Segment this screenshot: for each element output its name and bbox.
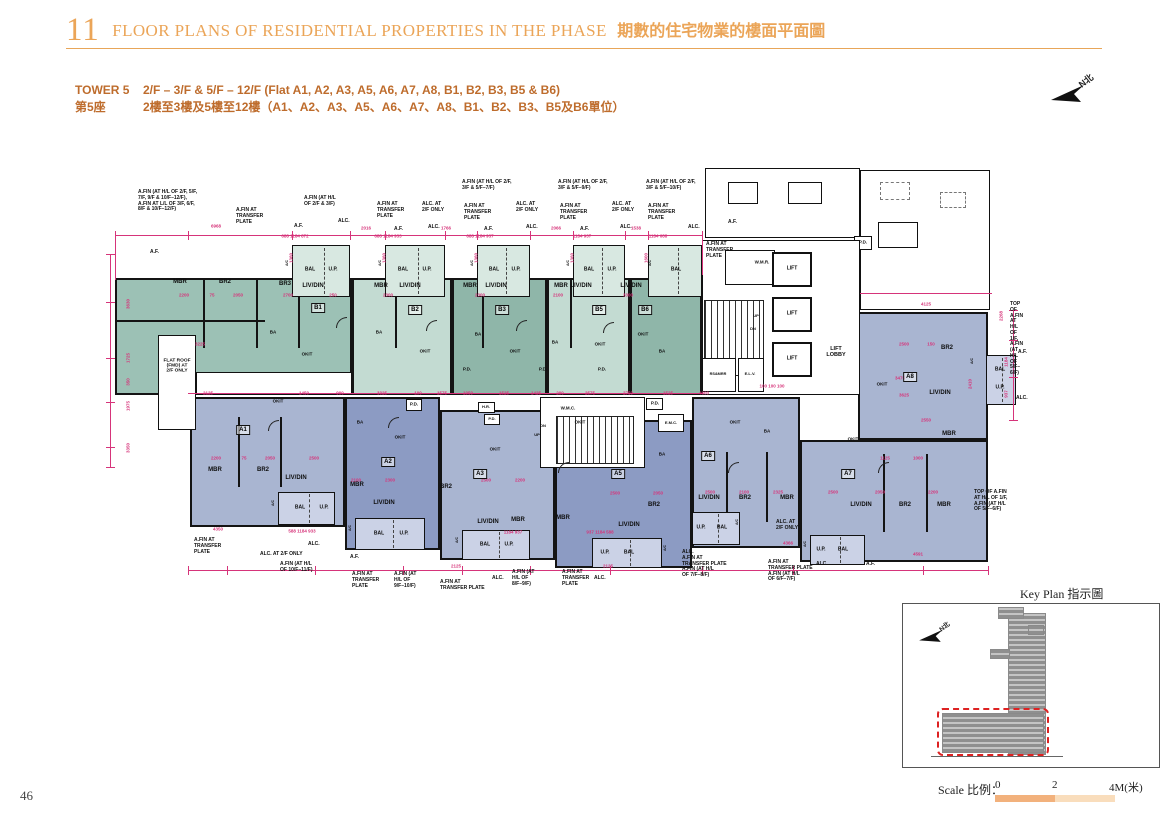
dimension-tick [1009, 377, 1018, 378]
dimension-tick [350, 231, 351, 240]
dimension-value: 1184 688 [649, 234, 668, 239]
balcony [385, 245, 445, 297]
key-plan-north-arrow-icon: N北 [917, 626, 950, 648]
dimension-value: 1000 [913, 456, 923, 461]
room-label: DN [540, 424, 546, 428]
flat-badge-B3: B3 [495, 305, 509, 315]
dimension-value: 1184 937 [573, 234, 592, 239]
dimension-value: 2300 [475, 293, 485, 298]
dimension-value: 937 [1004, 390, 1009, 398]
plan-annotation: A.F. [866, 562, 875, 568]
flat-badge-A3: A3 [473, 469, 487, 479]
room-label: A/C [567, 260, 571, 266]
room-label: DN [750, 327, 756, 331]
tower-info: TOWER 5 2/F – 3/F & 5/F – 12/F (Flat A1,… [75, 82, 624, 116]
room-label: A/C [286, 260, 290, 266]
room-label: BR2 [440, 484, 452, 490]
room-label: MBR [208, 467, 222, 473]
dimension-value: 2200 [928, 490, 938, 495]
dimension-value: 2575 [585, 391, 595, 396]
dimension-value: 1450 [299, 391, 309, 396]
dimension-tick [106, 467, 115, 468]
dimension-tick [106, 402, 115, 403]
balcony [462, 530, 530, 560]
dimension-tick [462, 566, 463, 575]
room-label: U.P. [422, 267, 431, 272]
dimension-value: 1975 [126, 401, 131, 411]
room-label: MBR [350, 482, 364, 488]
page-title-en: FLOOR PLANS OF RESIDENTIAL PROPERTIES IN… [112, 21, 607, 40]
room-label: U.P. [399, 531, 408, 536]
plan-annotation: A.F. [728, 220, 737, 226]
dimension-value: 2125 [603, 564, 613, 569]
room-label: BA [376, 331, 383, 336]
dimension-value: 2300 [385, 478, 395, 483]
flat-badge-A1: A1 [236, 425, 250, 435]
service-room [196, 372, 352, 395]
room-label: UP [753, 314, 759, 318]
plan-annotation: A.FIN (AT H/L OF 2/F, 3/F & 5/F–9/F) [558, 180, 608, 192]
room-label: BAL [305, 267, 315, 272]
room-label: OKIT [510, 350, 521, 355]
room-label: LIV/DIN [850, 502, 871, 508]
room-label: BA [659, 453, 666, 458]
tower-name-zh: 第5座 [75, 99, 143, 116]
plan-annotation: ALC. AT 2/F ONLY [422, 202, 444, 214]
dimension-line [115, 235, 703, 236]
dimension-value: 2300 [383, 293, 393, 298]
room-label: BR3 [279, 281, 291, 287]
dimension-tick [1009, 420, 1018, 421]
dimension-value: 2700 [283, 293, 293, 298]
dimension-value: 1050 [463, 391, 473, 396]
dimension-value: 688 1184 872 [281, 234, 308, 239]
balcony-divider [324, 248, 325, 294]
plan-annotation: A.F. [394, 227, 403, 233]
dimension-value: 2050 [265, 456, 275, 461]
dimension-value: 2500 [899, 342, 909, 347]
dimension-line [110, 254, 111, 468]
dimension-value: 6968 [211, 224, 221, 229]
plan-annotation: TOP OF A.FIN AT H/L OF 1/F, A.FIN (AT H/… [974, 490, 1007, 513]
dimension-value: 937 1184 588 [586, 530, 613, 535]
room-label: LIV/DIN [302, 283, 323, 289]
room-label: BAL [398, 267, 408, 272]
dimension-value: 200 [556, 391, 564, 396]
balcony-divider [309, 494, 310, 523]
room-label: BR2 [257, 467, 269, 473]
room-label: LIFT LOBBY [826, 347, 845, 359]
room-label: LIV/DIN [620, 283, 641, 289]
room-label: A/C [664, 545, 668, 551]
plan-wall [280, 417, 282, 487]
room-label: W.M.C. [561, 407, 576, 412]
plan-annotation: A.FIN AT TRANSFER PLATE [648, 204, 675, 221]
section-number: 11 [66, 12, 100, 48]
room-label: LIV/DIN [373, 500, 394, 506]
plan-annotation: ALC. [594, 576, 606, 582]
dimension-tick [702, 231, 703, 240]
floor-plan: 69682016176620661538688 1184 872688 1184… [88, 162, 1023, 624]
room-label: A/C [379, 260, 383, 266]
room-label: U.P. [328, 267, 337, 272]
dimension-value: 2325 [773, 490, 783, 495]
room-label: P.D. [463, 368, 471, 373]
service-room [158, 335, 196, 430]
scale-tick: 4M(米) [1109, 779, 1143, 795]
room-label: E.L.V. [745, 372, 756, 376]
key-plan-footprint-block [1029, 626, 1043, 634]
tower-floors-zh: 2樓至3樓及5樓至12樓（A1、A2、A3、A5、A6、A7、A8、B1、B2、… [143, 99, 624, 116]
dimension-value: 2500 [828, 490, 838, 495]
plan-annotation: ALC. [816, 562, 828, 568]
key-plan-highlight-box [937, 708, 1049, 756]
room-label: E.M.C. [665, 421, 677, 425]
dimension-tick [988, 566, 989, 575]
balcony-divider [499, 532, 500, 558]
dimension-value: 4350 [213, 527, 223, 532]
dimension-value: 1125 [880, 456, 890, 461]
scale-bar: Scale 比例： 024M(米) [938, 781, 1003, 798]
plan-annotation: A.FIN AT TRANSFER PLATE [562, 570, 589, 587]
plan-annotation: ALC. [620, 225, 632, 231]
page-header: 11 FLOOR PLANS OF RESIDENTIAL PROPERTIES… [66, 12, 1106, 49]
plan-annotation: A.FIN AT TRANSFER PLATE [352, 572, 379, 589]
dimension-value: 4366 [783, 541, 793, 546]
plan-annotation: ALC. [338, 219, 350, 225]
dimension-value: 2125 [203, 391, 213, 396]
dimension-tick [530, 231, 531, 240]
balcony [355, 518, 425, 550]
dimension-value: 2050 [233, 293, 243, 298]
room-label: BAL [995, 367, 1005, 372]
plan-annotation: A.F. [150, 250, 159, 256]
room-label: A/C [649, 260, 653, 266]
room-label: LIV/DIN [929, 390, 950, 396]
flat-badge-A5: A5 [611, 469, 625, 479]
room-label: H.R. [482, 405, 490, 409]
balcony-divider [393, 520, 394, 548]
room-label: BR2 [648, 502, 660, 508]
dimension-tick [625, 231, 626, 240]
dimension-tick [923, 566, 924, 575]
dimension-value: 350 [126, 378, 131, 386]
dimension-value: 3300 [623, 293, 633, 298]
scale-tick: 0 [995, 779, 1001, 791]
dimension-tick [106, 254, 115, 255]
plan-annotation: TOP OF A.FIN AT H/L OF 1/F, A.FIN (AT H/… [1010, 302, 1023, 377]
key-plan-footprint-block [991, 650, 1009, 658]
dimension-value: 150 [927, 342, 935, 347]
room-label: BR2 [941, 345, 953, 351]
dimension-tick [445, 231, 446, 240]
dimension-value: 75 [209, 293, 214, 298]
room-label: MBR [780, 495, 794, 501]
dimension-line [115, 235, 116, 280]
dimension-value: 1575 [437, 391, 447, 396]
room-label: U.P. [319, 505, 328, 510]
plan-wall [256, 278, 258, 348]
plan-annotation: A.FIN AT TRANSFER PLATE A.FIN (AT H/L OF… [768, 560, 813, 583]
room-label: OKIT [420, 350, 431, 355]
dimension-value: 250 [329, 293, 337, 298]
room-label: MBR [942, 431, 956, 437]
dimension-value: 2100 [553, 293, 563, 298]
plan-wall [115, 320, 265, 322]
room-label: W.M.R. [755, 261, 770, 266]
dimension-value: 3630 [126, 299, 131, 309]
room-label: P.D. [410, 403, 418, 408]
dimension-tick [106, 447, 115, 448]
plan-annotation: A.FIN (AT H/L OF 2/F, 5/F, 7/F, 9/F & 10… [138, 190, 197, 213]
room-label: MBR [511, 517, 525, 523]
dimension-tick [188, 566, 189, 575]
dimension-tick [188, 231, 189, 240]
plan-annotation: ALC. AT 2/F ONLY [612, 202, 634, 214]
flat-badge-B1: B1 [311, 303, 325, 313]
room-label: BR2 [739, 495, 751, 501]
page-number: 46 [20, 788, 33, 804]
plan-annotation: ALC. [308, 542, 320, 548]
room-label: MBR [463, 283, 477, 289]
flat-badge-A6: A6 [701, 451, 715, 461]
dimension-value: 2750 [623, 391, 633, 396]
plan-annotation: ALC. AT 2/F ONLY [260, 552, 303, 558]
plan-annotation: ALC. [1016, 396, 1028, 402]
room-label: LIV/DIN [485, 283, 506, 289]
dimension-value: 3325 [377, 391, 387, 396]
dimension-value: 588 1184 933 [288, 529, 315, 534]
room-label: OKIT [638, 333, 649, 338]
room-label: P.D. [651, 402, 659, 407]
dimension-value: 2200 [211, 456, 221, 461]
room-label: BA [764, 430, 771, 435]
dimension-value: 2016 [361, 226, 371, 231]
dimension-value: 2050 [875, 490, 885, 495]
room-label: BAL [374, 531, 384, 536]
dimension-value: 75 [241, 456, 246, 461]
dimension-value: 688 1184 933 [374, 234, 401, 239]
service-room [880, 182, 910, 200]
flat-badge-B5: B5 [592, 305, 606, 315]
dimension-value: 4591 [913, 552, 923, 557]
room-label: MBR [374, 283, 388, 289]
plan-annotation: A.FIN AT TRANSFER PLATE [236, 208, 263, 225]
dimension-value: 100 [414, 391, 422, 396]
room-label: LIFT [787, 356, 798, 361]
dimension-value: 2125 [451, 564, 461, 569]
flat-badge-B2: B2 [408, 305, 422, 315]
dimension-value: 3625 [899, 393, 909, 398]
room-label: BAL [671, 267, 681, 272]
room-label: BA [475, 333, 482, 338]
dimension-tick [315, 566, 316, 575]
room-label: A/C [804, 541, 808, 547]
plan-annotation: A.FIN (AT H/L OF 9/F–10/F) [394, 572, 416, 589]
plan-annotation: A.FIN AT TRANSFER PLATE [464, 204, 491, 221]
key-plan: N北 [902, 603, 1160, 768]
balcony [477, 245, 530, 297]
key-plan-ground-line [931, 756, 1063, 757]
service-room [788, 182, 822, 204]
room-label: U.P. [607, 267, 616, 272]
room-label: MBR [173, 279, 187, 285]
room-label: BAL [489, 267, 499, 272]
dimension-line [860, 293, 992, 294]
dimension-value: 100 100 100 [759, 384, 784, 389]
dimension-value: 1725 [126, 353, 131, 363]
plan-annotation: A.FIN AT TRANSFER PLATE [560, 204, 587, 221]
scale-tick: 2 [1052, 779, 1058, 791]
room-label: OKIT [595, 343, 606, 348]
plan-annotation: A.F. [484, 227, 493, 233]
dimension-value: 688 1184 937 [466, 234, 493, 239]
dimension-value: 2500 [705, 490, 715, 495]
flat-badge-A7: A7 [841, 469, 855, 479]
plan-annotation: A.FIN (AT H/L OF 2/F, 3/F & 5/F–7/F) [462, 180, 512, 192]
dimension-value: 3350 [126, 443, 131, 453]
room-label: OKIT [575, 421, 586, 426]
dimension-value: 1525 [499, 391, 509, 396]
scale-label: Scale 比例： [938, 783, 1003, 797]
room-label: LIV/DIN [285, 475, 306, 481]
room-label: OKIT [877, 383, 888, 388]
room-label: OKIT [848, 438, 859, 443]
plan-annotation: A.FIN (AT H/L OF 8/F–9/F) [512, 570, 534, 587]
dimension-tick [115, 231, 116, 240]
room-label: MBR [937, 502, 951, 508]
dimension-value: 2100 [739, 490, 749, 495]
dimension-value: 2200 [179, 293, 189, 298]
dimension-value: 1766 [441, 226, 451, 231]
flat-badge-A8: A8 [903, 372, 917, 382]
dimension-value: 1525 [663, 391, 673, 396]
plan-annotation: A.FIN AT TRANSFER PLATE [377, 202, 404, 219]
plan-annotation: ALC. [526, 225, 538, 231]
room-label: BA [659, 350, 666, 355]
room-label: U.P. [696, 525, 705, 530]
room-label: BA [270, 331, 277, 336]
dimension-value: 1425 [531, 391, 541, 396]
dimension-value: 900 [336, 391, 344, 396]
plan-annotation: A.FIN AT TRANSFER PLATE [440, 580, 485, 592]
balcony-divider [602, 248, 603, 294]
room-label: LIV/DIN [618, 522, 639, 528]
room-label: P.D. [859, 241, 867, 246]
dimension-line [702, 235, 703, 275]
plan-annotation: ALC. [688, 225, 700, 231]
room-label: OKIT [730, 421, 741, 426]
plan-annotation: ALC. AT 2/F ONLY [776, 520, 798, 532]
plan-annotation: A.F. [1018, 350, 1027, 356]
room-label: MBR [556, 515, 570, 521]
dimension-value: 2500 [610, 491, 620, 496]
room-label: U.P. [995, 385, 1004, 390]
dimension-value: 4600 [699, 391, 709, 396]
staircase [556, 416, 634, 464]
north-arrow-icon: N北 [1048, 80, 1094, 111]
dimension-value: 1538 [631, 226, 641, 231]
plan-annotation: A.FIN (AT H/L OF 10/F–11/F) [280, 562, 313, 574]
room-label: A/C [456, 537, 460, 543]
room-label: LIV/DIN [399, 283, 420, 289]
plan-annotation: ALC. [428, 225, 440, 231]
flat-badge-B6: B6 [638, 305, 652, 315]
room-label: LIFT [787, 311, 798, 316]
header-rule [66, 48, 1102, 49]
dimension-tick [106, 358, 115, 359]
dimension-tick [227, 566, 228, 575]
room-label: U.P. [511, 267, 520, 272]
plan-wall [203, 278, 205, 348]
key-plan-title: Key Plan 指示圖 [1020, 585, 1103, 602]
tower-name-en: TOWER 5 [75, 82, 143, 99]
dimension-value: 2550 [921, 418, 931, 423]
room-label: BAL [295, 505, 305, 510]
plan-annotation: A.FIN AT TRANSFER PLATE [194, 538, 221, 555]
room-label: BAL [717, 525, 727, 530]
room-label: RS&MRR [710, 372, 727, 376]
room-label: P.D. [598, 368, 606, 373]
plan-annotation: A.FIN (AT H/L OF 2/F, 3/F & 5/F–10/F) [646, 180, 696, 192]
flat-badge-A2: A2 [381, 457, 395, 467]
room-label: P.D. [539, 368, 547, 373]
room-label: A/C [471, 260, 475, 266]
dimension-value: 1184 937 [504, 530, 523, 535]
room-label: BAL [584, 267, 594, 272]
room-label: OKIT [273, 400, 284, 405]
tower-floors-en: 2/F – 3/F & 5/F – 12/F (Flat A1, A2, A3,… [143, 82, 560, 99]
room-label: LIFT [787, 266, 798, 271]
room-label: BAL [838, 547, 848, 552]
room-label: UP [534, 433, 540, 437]
room-label: BA [552, 341, 559, 346]
plan-annotation: A.FIN AT TRANSFER PLATE [706, 242, 733, 259]
room-label: BR2 [899, 502, 911, 508]
room-label: BA [357, 421, 364, 426]
dimension-value: 3225 [195, 342, 205, 347]
room-label: OKIT [490, 448, 501, 453]
room-label: BR2 [219, 279, 231, 285]
dimension-value: 2410 [968, 379, 973, 389]
plan-annotation: A.F. [294, 224, 303, 230]
room-label: OKIT [395, 436, 406, 441]
room-label: U.P. [600, 550, 609, 555]
room-label: LIV/DIN [477, 519, 498, 525]
dimension-value: 2066 [551, 226, 561, 231]
dimension-value: 4125 [921, 302, 931, 307]
key-plan-footprint-block [999, 608, 1023, 618]
plan-annotation: A.F. [580, 227, 589, 233]
room-label: A/C [736, 519, 740, 525]
room-label: BAL [480, 542, 490, 547]
scale-bar-strip [995, 795, 1115, 802]
service-room [878, 222, 918, 248]
room-label: BAL [624, 550, 634, 555]
room-label: FLAT ROOF (FMD) AT 2/F ONLY [163, 358, 190, 373]
service-room [728, 182, 758, 204]
room-label: A/C [272, 500, 276, 506]
plan-annotation: A.F. [350, 555, 359, 561]
dimension-tick [106, 302, 115, 303]
dimension-value: 2268 [999, 311, 1004, 321]
room-label: OKIT [302, 353, 313, 358]
room-label: LIV/DIN [570, 283, 591, 289]
page-title-zh: 期數的住宅物業的樓面平面圖 [617, 23, 825, 40]
balcony [292, 245, 350, 297]
room-label: LIV/DIN [698, 495, 719, 501]
room-label: MBR [554, 283, 568, 289]
